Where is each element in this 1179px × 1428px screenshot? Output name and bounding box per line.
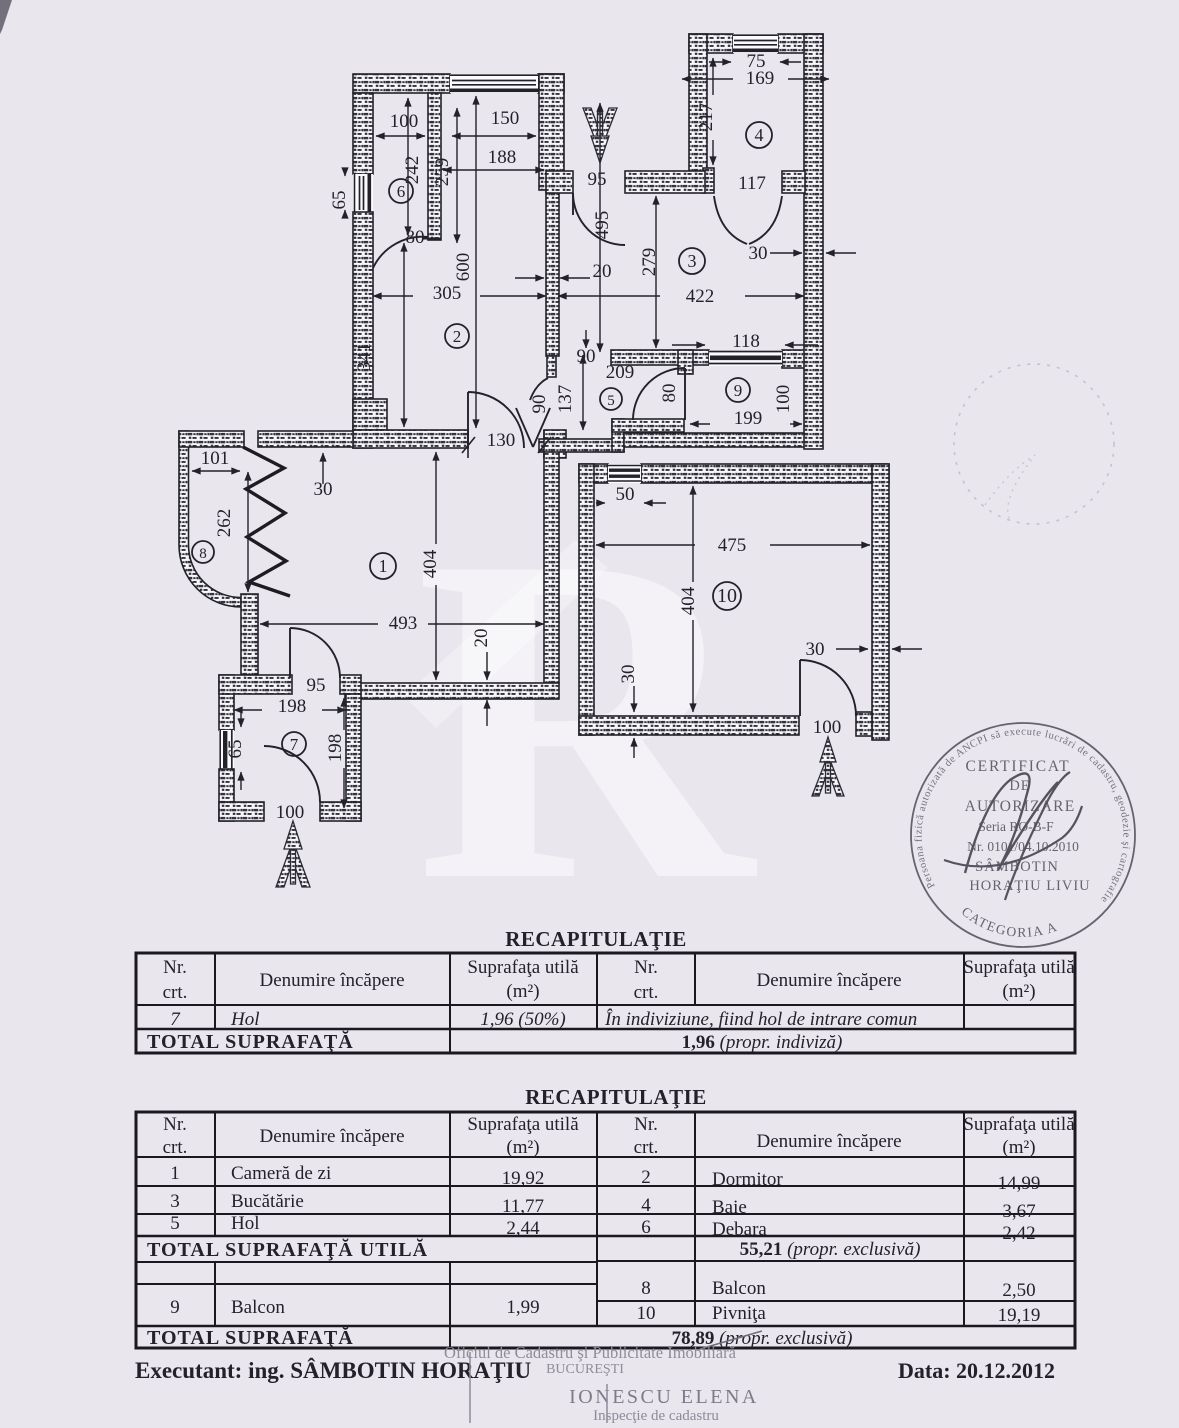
svg-text:Inspecţie de cadastru: Inspecţie de cadastru <box>593 1408 719 1423</box>
svg-text:4: 4 <box>755 125 764 145</box>
svg-text:1,96 (propr. indiviză): 1,96 (propr. indiviză) <box>682 1032 843 1053</box>
svg-text:Dormitor: Dormitor <box>712 1169 783 1190</box>
svg-text:1,99: 1,99 <box>506 1297 539 1318</box>
svg-text:5: 5 <box>170 1213 180 1234</box>
svg-text:2: 2 <box>641 1167 651 1188</box>
svg-text:(m²): (m²) <box>506 1137 539 1158</box>
svg-text:Nr.: Nr. <box>634 1114 658 1135</box>
svg-text:493: 493 <box>389 613 418 634</box>
svg-text:Nr.: Nr. <box>634 957 658 978</box>
svg-text:Denumire încăpere: Denumire încăpere <box>259 970 404 991</box>
svg-text:242: 242 <box>402 156 423 185</box>
svg-text:CERTIFICAT: CERTIFICAT <box>966 758 1071 775</box>
svg-text:crt.: crt. <box>163 1137 188 1158</box>
svg-text:Suprafaţa utilă: Suprafaţa utilă <box>963 1114 1075 1135</box>
svg-text:HORAŢIU LIVIU: HORAŢIU LIVIU <box>969 878 1090 894</box>
svg-text:495: 495 <box>592 211 613 240</box>
svg-text:Pivniţa: Pivniţa <box>712 1303 766 1324</box>
svg-text:IONESCU ELENA: IONESCU ELENA <box>569 1386 759 1408</box>
svg-text:5: 5 <box>607 393 615 409</box>
svg-text:Data: 20.12.2012: Data: 20.12.2012 <box>898 1358 1055 1383</box>
svg-text:Bucătărie: Bucătărie <box>231 1191 304 1212</box>
svg-text:7: 7 <box>170 1009 181 1030</box>
svg-text:Nr.: Nr. <box>163 957 187 978</box>
svg-text:150: 150 <box>491 108 520 129</box>
svg-text:Denumire încăpere: Denumire încăpere <box>259 1126 404 1147</box>
svg-text:2,42: 2,42 <box>1002 1223 1035 1244</box>
svg-text:Balcon: Balcon <box>712 1278 766 1299</box>
svg-text:100: 100 <box>773 385 794 414</box>
svg-text:6: 6 <box>641 1217 651 1238</box>
svg-text:20: 20 <box>593 261 612 282</box>
svg-text:8: 8 <box>641 1278 651 1299</box>
svg-text:Hol: Hol <box>230 1009 260 1030</box>
svg-text:50: 50 <box>616 484 635 505</box>
svg-text:404: 404 <box>678 586 699 615</box>
svg-text:341: 341 <box>354 343 375 372</box>
svg-text:169: 169 <box>746 68 775 89</box>
svg-text:95: 95 <box>307 675 326 696</box>
svg-text:(m²): (m²) <box>1002 1137 1035 1158</box>
svg-text:TOTAL SUPRAFAŢĂ: TOTAL SUPRAFAŢĂ <box>147 1029 354 1053</box>
svg-text:198: 198 <box>325 734 346 763</box>
svg-text:Suprafaţa utilă: Suprafaţa utilă <box>467 957 579 978</box>
svg-text:259: 259 <box>432 158 453 187</box>
svg-text:Suprafaţa utilă: Suprafaţa utilă <box>467 1114 579 1135</box>
svg-text:Baie: Baie <box>712 1197 747 1218</box>
svg-text:9: 9 <box>170 1297 180 1318</box>
svg-text:crt.: crt. <box>634 982 659 1003</box>
svg-text:Oficiul de Cadastru şi Publici: Oficiul de Cadastru şi Publicitate Imobi… <box>444 1343 737 1362</box>
svg-text:130: 130 <box>487 430 516 451</box>
svg-text:199: 199 <box>734 408 763 429</box>
svg-text:TOTAL SUPRAFAŢĂ UTILĂ: TOTAL SUPRAFAŢĂ UTILĂ <box>147 1237 428 1261</box>
svg-text:30: 30 <box>618 665 639 684</box>
svg-text:100: 100 <box>390 111 419 132</box>
svg-text:475: 475 <box>718 535 747 556</box>
svg-text:10: 10 <box>637 1303 656 1324</box>
svg-text:4: 4 <box>641 1195 651 1216</box>
svg-text:30: 30 <box>806 639 825 660</box>
svg-text:600: 600 <box>453 253 474 282</box>
svg-text:80: 80 <box>659 384 680 403</box>
svg-text:Suprafaţa utilă: Suprafaţa utilă <box>963 957 1075 978</box>
svg-text:404: 404 <box>420 549 441 578</box>
svg-text:90: 90 <box>529 395 550 414</box>
svg-text:Balcon: Balcon <box>231 1297 285 1318</box>
svg-text:1: 1 <box>170 1163 180 1184</box>
svg-text:Nr.: Nr. <box>163 1114 187 1135</box>
svg-text:30: 30 <box>749 243 768 264</box>
svg-text:1,96 (50%): 1,96 (50%) <box>480 1009 565 1030</box>
svg-text:Debara: Debara <box>712 1219 767 1240</box>
svg-text:19,19: 19,19 <box>998 1305 1041 1326</box>
svg-text:198: 198 <box>278 696 307 717</box>
svg-text:65: 65 <box>329 191 350 210</box>
svg-text:Denumire încăpere: Denumire încăpere <box>756 1131 901 1152</box>
svg-text:90: 90 <box>577 346 596 367</box>
svg-text:TOTAL SUPRAFAŢĂ: TOTAL SUPRAFAŢĂ <box>147 1325 354 1349</box>
svg-text:11,77: 11,77 <box>502 1196 544 1217</box>
svg-text:137: 137 <box>555 385 576 414</box>
svg-text:117: 117 <box>738 173 766 194</box>
svg-text:Denumire încăpere: Denumire încăpere <box>756 970 901 991</box>
svg-text:188: 188 <box>488 147 517 168</box>
svg-text:7: 7 <box>290 735 299 754</box>
svg-text:100: 100 <box>813 717 842 738</box>
svg-text:279: 279 <box>639 248 660 277</box>
svg-text:118: 118 <box>732 331 760 352</box>
svg-text:Cameră de zi: Cameră de zi <box>231 1163 331 1184</box>
svg-text:2,50: 2,50 <box>1002 1280 1035 1301</box>
svg-text:3,67: 3,67 <box>1002 1201 1035 1222</box>
svg-text:AUTORIZARE: AUTORIZARE <box>965 798 1076 815</box>
svg-text:RECAPITULAŢIE: RECAPITULAŢIE <box>505 927 687 951</box>
svg-text:209: 209 <box>606 362 635 383</box>
svg-text:BUCUREŞTI: BUCUREŞTI <box>546 1362 624 1377</box>
svg-text:101: 101 <box>201 448 230 469</box>
svg-text:305: 305 <box>433 283 462 304</box>
svg-text:20: 20 <box>471 629 492 648</box>
svg-text:55,21 (propr. exclusivă): 55,21 (propr. exclusivă) <box>740 1239 921 1260</box>
svg-text:14,99: 14,99 <box>998 1173 1041 1194</box>
svg-text:8: 8 <box>199 546 207 562</box>
svg-text:În indiviziune, fiind hol de i: În indiviziune, fiind hol de intrare com… <box>604 1008 917 1030</box>
svg-text:(m²): (m²) <box>1002 981 1035 1002</box>
svg-text:Hol: Hol <box>231 1213 260 1234</box>
svg-text:100: 100 <box>276 802 305 823</box>
svg-text:crt.: crt. <box>634 1137 659 1158</box>
svg-text:65: 65 <box>225 740 246 759</box>
svg-text:80: 80 <box>406 227 425 248</box>
svg-text:RECAPITULAŢIE: RECAPITULAŢIE <box>525 1085 707 1109</box>
svg-text:422: 422 <box>686 286 715 307</box>
svg-text:3: 3 <box>688 251 697 271</box>
svg-text:95: 95 <box>588 169 607 190</box>
svg-text:262: 262 <box>214 509 235 538</box>
svg-text:1: 1 <box>379 556 388 576</box>
svg-text:10: 10 <box>717 585 737 607</box>
svg-text:2: 2 <box>453 327 462 346</box>
svg-text:3: 3 <box>170 1191 180 1212</box>
svg-text:19,92: 19,92 <box>502 1168 545 1189</box>
svg-text:217: 217 <box>696 103 717 132</box>
svg-text:crt.: crt. <box>163 982 188 1003</box>
svg-text:(m²): (m²) <box>506 981 539 1002</box>
svg-text:9: 9 <box>734 381 743 400</box>
svg-text:2,44: 2,44 <box>506 1218 540 1239</box>
